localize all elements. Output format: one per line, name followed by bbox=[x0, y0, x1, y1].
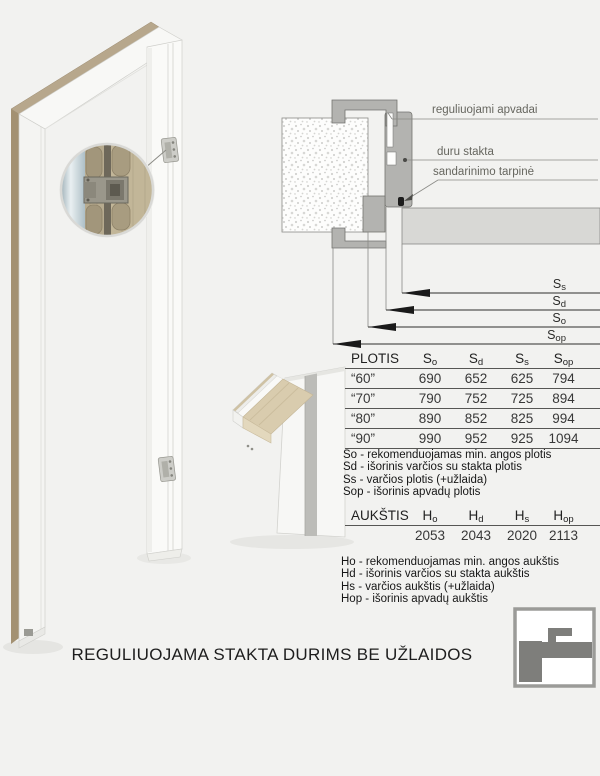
col-header-so: So bbox=[407, 348, 453, 369]
height-table: AUKŠTIS Ho Hd Hs Hop 2053 2043 2020 2113 bbox=[345, 505, 600, 545]
dimension-arrows bbox=[333, 289, 430, 348]
legend-line: So - rekomenduojamas min. angos plotis bbox=[343, 449, 551, 461]
col-header-hs: Hs bbox=[499, 505, 545, 526]
label-seal: sandarinimo tarpinė bbox=[433, 166, 534, 178]
door-leaf-section bbox=[402, 208, 600, 244]
width-table: PLOTIS So Sd Ss Sop “60” 690 652 625 794… bbox=[345, 348, 600, 449]
legend-line: Sd - išorinis varčios su stakta plotis bbox=[343, 461, 551, 473]
legend-line: Hs - varčios aukštis (+užlaida) bbox=[341, 581, 559, 593]
legend-line: Hd - išorinis varčios su stakta aukštis bbox=[341, 568, 559, 580]
width-table-header: PLOTIS So Sd Ss Sop bbox=[345, 348, 600, 369]
col-header-ss: Ss bbox=[499, 348, 545, 369]
dim-label-ss: Ss bbox=[524, 277, 566, 291]
height-table-title: AUKŠTIS bbox=[345, 505, 407, 526]
brand-logo bbox=[509, 604, 599, 694]
legend-line: Sop - išorinis apvadų plotis bbox=[343, 486, 551, 498]
width-legend: So - rekomenduojamas min. angos plotis S… bbox=[343, 449, 551, 498]
col-header-sd: Sd bbox=[453, 348, 499, 369]
hinge-top bbox=[161, 137, 179, 163]
legend-line: Ho - rekomenduojamas min. angos aukštis bbox=[341, 556, 559, 568]
frame-white-profile bbox=[19, 27, 182, 648]
adjustment-slot bbox=[387, 113, 393, 147]
col-header-hop: Hop bbox=[545, 505, 600, 526]
hinge-bottom bbox=[158, 456, 176, 482]
legend-line: Ss - varčios plotis (+užlaida) bbox=[343, 474, 551, 486]
table-row-90: “90” 990 952 925 1094 bbox=[345, 429, 600, 449]
col-header-sop: Sop bbox=[545, 348, 600, 369]
seal-gasket bbox=[398, 197, 404, 206]
height-legend: Ho - rekomenduojamas min. angos aukštis … bbox=[341, 556, 559, 605]
page-title: REGULIUOJAMA STAKTA DURIMS BE UŽLAIDOS bbox=[62, 645, 482, 665]
col-header-hd: Hd bbox=[453, 505, 499, 526]
width-table-title: PLOTIS bbox=[345, 348, 407, 369]
table-row-80: “80” 890 852 825 994 bbox=[345, 409, 600, 429]
dim-label-sop: Sop bbox=[524, 328, 566, 342]
label-frame: duru stakta bbox=[437, 146, 494, 158]
frame-profile-3d bbox=[190, 350, 360, 555]
height-values-row: 2053 2043 2020 2113 bbox=[345, 526, 600, 546]
adjustment-slot bbox=[387, 152, 396, 165]
shadow bbox=[230, 535, 354, 549]
leader-dot bbox=[403, 158, 407, 162]
door-frame-illustration bbox=[0, 0, 240, 660]
wall-section bbox=[282, 118, 368, 232]
table-row-60: “60” 690 652 625 794 bbox=[345, 369, 600, 389]
label-architrave: reguliuojami apvadai bbox=[432, 104, 537, 116]
spec-sheet-page: reguliuojami apvadai duru stakta sandari… bbox=[0, 0, 600, 776]
table-row-70: “70” 790 752 725 894 bbox=[345, 389, 600, 409]
dim-label-sd: Sd bbox=[524, 294, 566, 308]
height-table-header: AUKŠTIS Ho Hd Hs Hop bbox=[345, 505, 600, 526]
hinge-detail-circle bbox=[59, 142, 156, 239]
col-header-ho: Ho bbox=[407, 505, 453, 526]
dim-label-so: So bbox=[524, 311, 566, 325]
